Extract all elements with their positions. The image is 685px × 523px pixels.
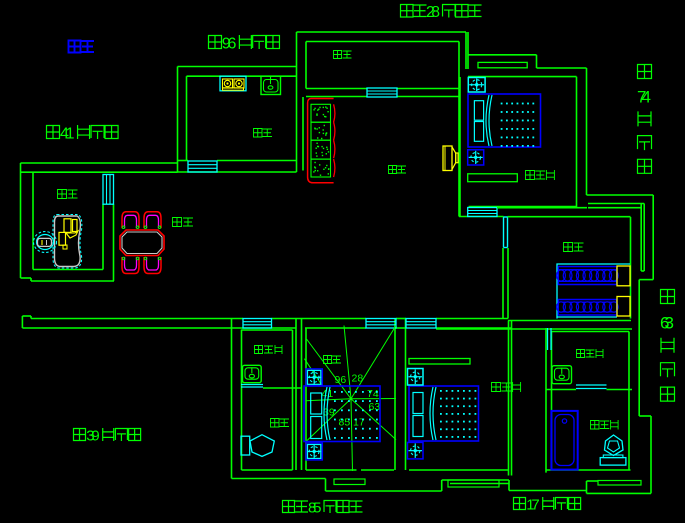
svg-text:39: 39: [323, 407, 335, 419]
svg-text:74: 74: [637, 88, 651, 107]
svg-text:41: 41: [60, 126, 75, 143]
svg-text:17: 17: [353, 417, 365, 429]
svg-text:63: 63: [660, 313, 674, 332]
svg-text:28: 28: [352, 373, 364, 385]
svg-text:85: 85: [308, 500, 322, 517]
svg-text:17: 17: [526, 497, 540, 514]
svg-text:96: 96: [335, 374, 347, 386]
svg-text:28: 28: [426, 4, 440, 21]
svg-text:74: 74: [367, 388, 379, 400]
svg-text:96: 96: [222, 36, 237, 53]
svg-text:39: 39: [86, 428, 100, 445]
svg-text:85: 85: [339, 417, 351, 429]
svg-text:63: 63: [369, 401, 381, 413]
